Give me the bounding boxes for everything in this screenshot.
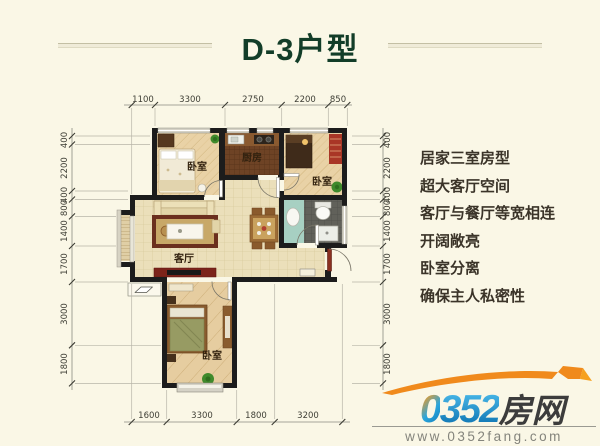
site-logo: 0352房网 www.0352fang.com: [370, 366, 598, 444]
feature-item: 卧室分离: [420, 261, 598, 277]
dim-label-left-1: 2200: [60, 157, 70, 179]
page: D-3户型: [0, 0, 600, 446]
dim-label-left-6: 3000: [60, 303, 70, 325]
dim-label-bottom-3: 3200: [297, 411, 319, 421]
feature-list: 居家三室房型 超大客厅空间 客厅与餐厅等宽相连 开阔敞亮 卧室分离 确保主人私密…: [420, 151, 598, 316]
dim-label-left-7: 1800: [60, 353, 70, 375]
brand-number: 352: [440, 388, 499, 431]
dim-label-bottom-1: 3300: [191, 411, 213, 421]
window-top-bedroom-left: [158, 128, 210, 133]
window-top-hall: [257, 128, 273, 133]
dim-label-right-1: 2200: [383, 157, 393, 179]
room-label-living: 客厅: [173, 252, 194, 265]
dim-label-top-1: 3300: [179, 95, 201, 105]
dim-label-left-4: 1400: [60, 220, 70, 242]
feature-item: 居家三室房型: [420, 151, 598, 167]
window-top-kitchen: [227, 128, 249, 133]
feature-item: 超大客厅空间: [420, 179, 598, 195]
feature-item: 客厅与餐厅等宽相连: [420, 206, 598, 222]
site-url: www.0352fang.com: [370, 429, 598, 444]
window-top-bedroom-right: [290, 128, 328, 133]
ac-unit-symbol: [128, 283, 161, 296]
brand-cn: 房网: [499, 392, 565, 429]
window-bathroom: [342, 206, 347, 244]
dim-label-right-4: 1400: [383, 220, 393, 242]
dim-label-top-4: 850: [330, 95, 346, 105]
dim-label-top-2: 2750: [242, 95, 264, 105]
dim-label-bottom-2: 1800: [245, 411, 267, 421]
room-label-kitchen: 厨房: [242, 151, 262, 164]
dim-label-left-5: 1700: [60, 253, 70, 275]
bay-window-bottom: [177, 383, 223, 392]
dim-label-bottom-0: 1600: [138, 411, 160, 421]
brand-zero: 0: [420, 388, 440, 431]
dim-label-left-3: 800: [60, 200, 70, 216]
dim-label-top-3: 2200: [294, 95, 316, 105]
dim-label-top-0: 1100: [132, 95, 154, 105]
room-label-bedroom-top-right: 卧室: [312, 175, 332, 188]
door-entry: [328, 249, 352, 271]
room-label-bedroom-top-left: 卧室: [187, 160, 207, 173]
feature-item: 确保主人私密性: [420, 289, 598, 305]
feature-item: 开阔敞亮: [420, 234, 598, 250]
dim-label-right-5: 1700: [383, 253, 393, 275]
room-label-bedroom-bottom: 卧室: [202, 349, 222, 362]
dim-label-right-3: 800: [383, 200, 393, 216]
kitchen-furniture: [225, 133, 279, 146]
brand-text: 0352房网: [420, 384, 565, 432]
dim-label-right-0: 400: [383, 132, 393, 148]
logo-divider: [372, 426, 596, 427]
dim-label-left-0: 400: [60, 132, 70, 148]
dim-label-right-6: 3000: [383, 303, 393, 325]
